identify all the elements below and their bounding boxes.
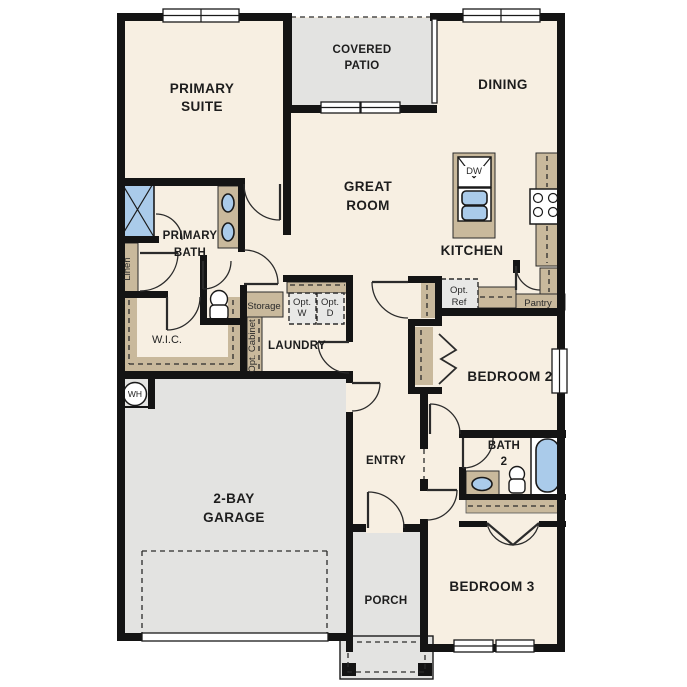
floor-plan: PRIMARY SUITE COVERED PATIO DINING GREAT… — [0, 0, 687, 687]
primary-bath-label: BATH — [174, 247, 206, 259]
covered-patio-label: PATIO — [345, 60, 380, 72]
window — [552, 349, 567, 393]
opt-washer-label: W — [298, 308, 307, 319]
porch-floor — [353, 532, 420, 638]
entry-label: ENTRY — [366, 455, 406, 467]
window — [163, 9, 239, 22]
great-room-label: ROOM — [346, 198, 390, 213]
linen-label: Linen — [122, 257, 133, 280]
bath2-label: 2 — [501, 456, 508, 468]
opt-cabinet-label: Opt. Cabinet — [247, 319, 258, 373]
porch-column — [342, 663, 356, 676]
bedroom2-label: BEDROOM 2 — [467, 369, 552, 384]
opt-washer-label: Opt. — [293, 297, 311, 308]
garage-label: GARAGE — [203, 510, 265, 525]
garage-floor — [125, 379, 346, 634]
bed2-closet-shelf — [414, 327, 433, 385]
vanity-sink — [222, 223, 234, 241]
garage-label: 2-BAY — [213, 491, 254, 506]
vanity-sink — [222, 194, 234, 212]
kitchen-sink-basin — [462, 206, 487, 220]
toilet-base — [210, 305, 228, 320]
opt-dryer-label: Opt. — [321, 297, 339, 308]
laundry-label: LAUNDRY — [268, 340, 326, 352]
primary-suite-label: SUITE — [181, 99, 223, 114]
opt-ref-label: Ref — [452, 297, 467, 308]
pantry-label: Pantry — [524, 298, 552, 309]
window — [463, 9, 540, 22]
kitchen-label: KITCHEN — [441, 243, 504, 258]
toilet-base — [509, 479, 525, 493]
kitchen-sink-basin — [462, 191, 487, 205]
bathtub — [536, 439, 559, 492]
garage-door-opening — [142, 633, 328, 641]
primary-suite-label: PRIMARY — [170, 81, 235, 96]
wic-label: W.I.C. — [152, 334, 182, 346]
primary-bath-label: PRIMARY — [163, 230, 218, 242]
dining-label: DINING — [478, 77, 528, 92]
coat-closet-shelf — [421, 283, 435, 318]
floor-plan-drawing: PRIMARY SUITE COVERED PATIO DINING GREAT… — [0, 0, 687, 687]
front-door-opening — [366, 523, 403, 533]
wic-shelf-bottom — [124, 357, 240, 373]
dishwasher-label: DW — [466, 166, 482, 177]
porch-label: PORCH — [364, 595, 407, 607]
water-heater-label: WH — [128, 389, 142, 399]
great-room-label: GREAT — [344, 179, 393, 194]
window — [454, 640, 493, 652]
window — [496, 640, 534, 652]
bedroom3-label: BEDROOM 3 — [449, 579, 534, 594]
storage-label: Storage — [247, 301, 280, 312]
bath2-label: BATH — [488, 440, 520, 452]
opt-ref-label: Opt. — [450, 285, 468, 296]
opt-dryer-label: D — [327, 308, 334, 319]
bath2-sink — [472, 478, 492, 491]
laundry-counter — [287, 282, 348, 293]
covered-patio-label: COVERED — [333, 44, 392, 56]
